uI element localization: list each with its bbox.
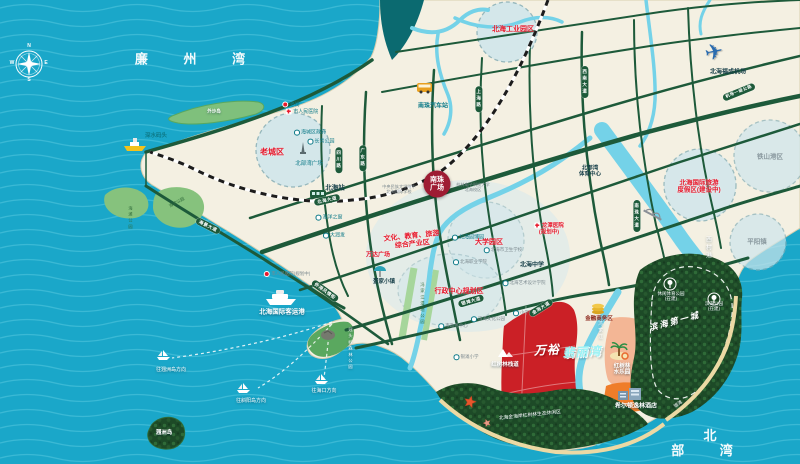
label-haicheng-district-gov-text: 海城区政府	[301, 130, 326, 136]
roadcap-xinan-avenue-text: 西南大道	[583, 69, 588, 95]
label-beihai-railway-station: 北海站	[325, 184, 345, 191]
zone-label-admin-center: 行政中心规划区	[435, 288, 484, 296]
project-name-suffix: 翡丽湾	[562, 345, 602, 361]
zone-label-intl-tourism-resort-text: 北海国际旅游 度假区(建设中)	[677, 180, 720, 194]
dot-marker-icon	[438, 323, 444, 329]
label-beihai-middle-school-text: 北海中学	[520, 263, 544, 269]
label-binhai-park: 滨海公园 (在建)	[705, 301, 723, 311]
label-guilin-univ-campus-text: 桂林电子科技大学 北海校区	[456, 182, 490, 192]
label-ocean-window: 海洋之窗	[315, 215, 342, 222]
label-nanzhu-bus-station-text: 南珠汽车站	[418, 104, 448, 110]
label-binhai-first-city: 滨海第一城	[648, 311, 701, 334]
roadcap-sichuan-road: 四川路	[335, 147, 342, 173]
label-yuanbo-garden-text: 北海园博园	[459, 235, 484, 241]
label-rt-mart-text: 大润发	[330, 233, 345, 239]
label-vocational-college-text: 北海职业学院	[460, 259, 487, 264]
roadcap-guangdong-road: 广东路	[359, 145, 366, 171]
label-health-school: 北海市卫生学校	[484, 247, 523, 253]
label-fucheng-airport-text: 北海福成机场	[710, 70, 746, 76]
label-beach-park: 海滩公园	[128, 206, 133, 231]
sea-label-beibu-gulf-text: 北 部 湾	[671, 428, 749, 458]
zone-label-old-town-text: 老城区	[260, 147, 284, 156]
cross-marker-icon	[286, 108, 292, 114]
label-mangrove-water-park-text: 红树林 水乐园	[614, 364, 631, 376]
project-name-prefix: 万裕	[534, 343, 561, 358]
zone-label-tieshangang-text: 铁山港区	[757, 153, 783, 160]
roadcap-shanghai-road: 上海路	[475, 86, 482, 112]
label-ocean-window-text: 海洋之窗	[322, 215, 342, 221]
dot-marker-icon	[513, 310, 519, 316]
dot-marker-icon	[454, 354, 460, 360]
project-name-prefix-text: 万裕	[534, 342, 561, 357]
label-intl-passenger-port-text: 北海国际客运港	[259, 308, 305, 315]
roadcap-beihai-avenue: 北海大道	[314, 194, 341, 207]
label-hilton-doubletree-hotel: 希尔顿逸林酒店	[615, 404, 657, 411]
label-nanzhu-bus-station: 南珠汽车站	[418, 104, 448, 111]
zone-label-university-area-text: 大学园区	[475, 239, 503, 246]
label-rt-mart: 大润发	[323, 233, 345, 240]
label-weizhou-island-text: 涠洲岛	[156, 430, 173, 436]
label-intl-passenger-port: 北海国际客运港	[259, 308, 305, 315]
zone-label-admin-center-text: 行政中心规划区	[435, 288, 484, 295]
label-beibuwan-sports-center: 北部湾 体育中心	[579, 166, 601, 179]
dot-marker-icon	[484, 247, 490, 253]
label-binhai-culture-park: 滨海文化公园	[471, 316, 505, 322]
label-seaside-park-text: 海滨公园	[168, 196, 185, 208]
compass-letter-n-text: N	[27, 43, 31, 49]
label-primary-school: 小学	[513, 310, 529, 316]
label-route-weizhou-text: 往涠洲岛方向	[156, 367, 186, 373]
label-leisure-sports-park: 休闲体育公园 (在建)	[658, 291, 685, 301]
label-route-haikou: 往海口方向	[311, 389, 336, 395]
label-beibuwan-square: 北部湾广场	[295, 161, 323, 167]
label-laojie-old-street-text: 老街	[290, 102, 300, 108]
label-beihai-middle-school: 北海中学	[520, 263, 544, 270]
roadcap-jinhai-avenue: 金海大道	[528, 298, 554, 318]
label-fengjiajiang-wetland-text: 冯家江湿地公园	[420, 282, 425, 325]
zone-label-industrial-park-text: 北海工业园区	[492, 26, 534, 33]
label-gov-service-center: 市政务中心	[438, 323, 468, 329]
label-yintan-beach: 银滩	[673, 399, 683, 408]
roadcap-airport-highway: 机场一级公路	[722, 82, 756, 101]
label-route-haikou-text: 往海口方向	[311, 388, 336, 394]
sea-label-lianzhou-bay: 廉 州 湾	[119, 53, 261, 68]
compass-letter-s: S	[27, 78, 30, 84]
label-danjia-town: 疍家小镇	[373, 279, 395, 285]
cross-marker-icon	[534, 222, 540, 228]
zone-label-culture-industry: 文化、教育、旅游 综合产业区	[383, 230, 440, 252]
airplane-icon-text: ✈	[702, 38, 725, 66]
label-city-people-hospital: 市人民医院	[286, 108, 319, 115]
label-seaside-park: 海滨公园	[168, 197, 185, 209]
label-minzu-school: 中央民族大学附中 北海国际学校	[382, 185, 416, 195]
label-hilton-doubletree-hotel-text: 希尔顿逸林酒店	[615, 404, 657, 410]
sea-label-beibu-gulf: 北 部 湾	[665, 429, 755, 459]
label-binhai-park-text: 滨海公园 (在建)	[705, 301, 723, 311]
label-route-weizhou: 往涠洲岛方向	[156, 368, 186, 374]
roadcap-qiaogang-street: 侨港风情街	[310, 279, 339, 303]
label-people-hospital-planned: 市人民医院(规划中)	[264, 271, 311, 277]
roadcap-yintan-avenue: 银滩大道	[458, 294, 485, 308]
label-longtan-hospital: 龙潭医院 (规划中)	[534, 222, 564, 235]
dot-marker-icon	[307, 139, 313, 145]
roadcap-shanghai-road-text: 上海路	[477, 89, 482, 109]
label-beibuwan-square-text: 北部湾广场	[295, 161, 323, 167]
red-marker-icon	[282, 101, 288, 107]
label-xicungang-river-text: 西村港	[704, 236, 710, 260]
label-gov-service-center-text: 市政务中心	[445, 323, 468, 328]
airplane-icon: ✈	[702, 38, 725, 67]
label-vocational-college: 北海职业学院	[453, 259, 487, 265]
dot-marker-icon	[452, 235, 458, 241]
roadcap-yintan-avenue-text: 银滩大道	[461, 296, 482, 306]
label-finance-business-district: 金融商务区	[585, 316, 613, 322]
label-beach-park-text: 海滩公园	[128, 206, 133, 231]
label-shenshui-wharf: 深水码头	[145, 133, 167, 139]
label-beibuwan-sports-center-text: 北部湾 体育中心	[579, 166, 601, 178]
project-name-suffix-text: 翡丽湾	[562, 344, 602, 360]
label-mangrove-water-park: 红树林 水乐园	[614, 364, 631, 377]
label-guantouling-forest-park-text: 冠头岭森林公园	[348, 327, 353, 370]
label-laojie-old-street: 老街	[282, 101, 300, 108]
label-finance-business-district-text: 金融商务区	[585, 316, 613, 322]
label-weizhou-island: 涠洲岛	[156, 430, 173, 436]
beihai-location-map: 廉 州 湾北 部 湾NESW北海工业园区老城区大学园区行政中心规划区北海国际旅游…	[0, 0, 800, 464]
dot-marker-icon	[323, 233, 329, 239]
roadcap-guangdong-road-text: 广东路	[361, 148, 366, 168]
sea-label-lianzhou-bay-text: 廉 州 湾	[135, 52, 261, 67]
label-art-design-college-text: 北海艺术设计学院	[510, 280, 546, 285]
label-route-xieyang: 往斜阳岛方向	[236, 399, 266, 405]
compass-letter-e-text: E	[44, 60, 47, 66]
zone-label-intl-tourism-resort: 北海国际旅游 度假区(建设中)	[677, 180, 720, 195]
dot-marker-icon	[471, 316, 477, 322]
zone-label-tieshangang: 铁山港区	[757, 153, 783, 160]
label-wanda-plaza-text: 万达广场	[366, 253, 390, 259]
dot-marker-icon	[294, 130, 300, 136]
compass-letter-w: W	[10, 61, 15, 67]
label-guilin-univ-campus: 桂林电子科技大学 北海校区	[456, 183, 490, 193]
label-shenshui-wharf-text: 深水码头	[145, 133, 167, 139]
label-mangrove-boardwalk-text: 红树林栈道	[491, 362, 519, 368]
label-mangrove-eco-area: 北海金海岸红树林生态休闲区	[499, 410, 562, 422]
roadcap-nanzhu-avenue-text: 南珠大道	[635, 203, 640, 229]
label-changqing-park-text: 长青公园	[314, 139, 334, 145]
label-danjia-town-text: 疍家小镇	[373, 279, 395, 285]
zone-label-university-area: 大学园区	[475, 239, 503, 247]
label-yintan-primary-school: 银滩小学	[454, 354, 479, 360]
label-waishadao-island-text: 外沙岛	[207, 108, 221, 113]
dot-marker-icon	[453, 259, 459, 265]
label-yintan-primary-school-text: 银滩小学	[461, 354, 479, 359]
roadcap-jinhai-avenue-text: 金海大道	[531, 301, 551, 316]
zone-label-pingyang-text: 平阳镇	[747, 238, 767, 245]
zone-label-culture-industry-text: 文化、教育、旅游 综合产业区	[383, 230, 439, 250]
label-yintan-beach-text: 银滩	[673, 399, 683, 408]
dot-marker-icon	[503, 280, 509, 286]
label-longtan-hospital-text: 龙潭医院 (规划中)	[539, 223, 564, 235]
roadcap-haijing-avenue-text: 海景大道	[198, 219, 218, 233]
label-mangrove-boardwalk: 红树林栈道	[491, 362, 519, 368]
label-city-people-hospital-text: 市人民医院	[293, 109, 318, 115]
labels-layer: 廉 州 湾北 部 湾NESW北海工业园区老城区大学园区行政中心规划区北海国际旅游…	[0, 0, 800, 464]
label-guantouling-forest-park: 冠头岭森林公园	[348, 327, 353, 370]
label-xicungang-river: 西村港	[704, 236, 711, 260]
label-fengjiajiang-wetland: 冯家江湿地公园	[420, 282, 425, 325]
label-people-hospital-planned-text: 市人民医院(规划中)	[271, 271, 310, 276]
roadcap-xinan-avenue: 西南大道	[581, 66, 588, 98]
roadcap-beihai-avenue-text: 北海大道	[317, 195, 338, 204]
compass-letter-s-text: S	[27, 77, 30, 83]
label-fucheng-airport: 北海福成机场	[710, 70, 746, 77]
label-beihai-railway-station-text: 北海站	[325, 184, 345, 191]
compass-letter-e: E	[44, 61, 47, 67]
zone-label-old-town: 老城区	[260, 147, 284, 156]
label-art-design-college: 北海艺术设计学院	[503, 280, 546, 286]
compass-letter-w-text: W	[10, 60, 15, 66]
zone-label-industrial-park: 北海工业园区	[492, 26, 534, 34]
label-binhai-culture-park-text: 滨海文化公园	[478, 316, 505, 321]
roadcap-sichuan-road-text: 四川路	[337, 150, 342, 170]
label-fengjiajiang-river-text: 冯家江	[599, 321, 604, 341]
label-wanda-plaza: 万达广场	[366, 253, 390, 260]
label-fengjiajiang-river: 冯家江	[598, 321, 603, 341]
label-changqing-park: 长青公园	[307, 139, 334, 146]
roadcap-airport-highway-text: 机场一级公路	[725, 84, 753, 99]
label-route-xieyang-text: 往斜阳岛方向	[236, 398, 266, 404]
label-health-school-text: 北海市卫生学校	[491, 247, 523, 252]
label-yuanbo-garden: 北海园博园	[452, 235, 484, 242]
label-minzu-school-text: 中央民族大学附中 北海国际学校	[382, 184, 416, 194]
label-primary-school-text: 小学	[520, 310, 529, 315]
label-binhai-first-city-text: 滨海第一城	[648, 311, 701, 334]
label-haicheng-district-gov: 海城区政府	[294, 130, 326, 137]
compass-letter-n: N	[27, 44, 31, 50]
badge-nanzhu-plaza-text: 南珠 广场	[430, 176, 444, 191]
badge-nanzhu-plaza: 南珠 广场	[424, 171, 451, 198]
red-marker-icon	[264, 271, 270, 277]
roadcap-nanzhu-avenue: 南珠大道	[633, 200, 640, 232]
label-waishadao-island: 外沙岛	[207, 108, 221, 113]
label-mangrove-eco-area-text: 北海金海岸红树林生态休闲区	[499, 410, 562, 421]
roadcap-haijing-avenue: 海景大道	[195, 217, 221, 235]
zone-label-pingyang: 平阳镇	[747, 238, 767, 245]
label-leisure-sports-park-text: 休闲体育公园 (在建)	[658, 291, 685, 301]
dot-marker-icon	[315, 215, 321, 221]
roadcap-qiaogang-street-text: 侨港风情街	[313, 282, 336, 301]
